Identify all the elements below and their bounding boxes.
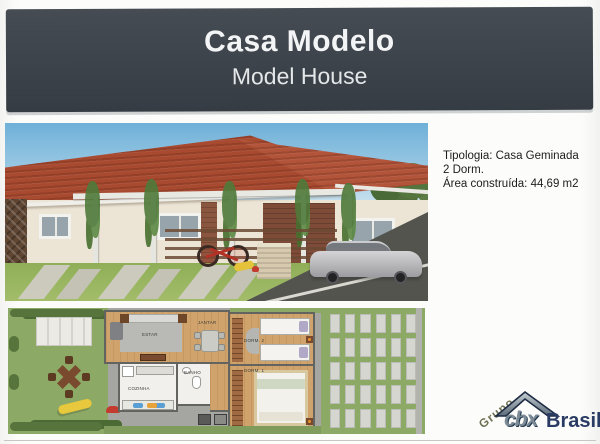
side-garden (8, 308, 108, 434)
car-wheel (326, 271, 339, 284)
garden-chair (65, 356, 73, 364)
paver (360, 385, 370, 404)
title-banner: Casa Modelo Model House (6, 7, 593, 113)
nightstand (306, 418, 313, 425)
company-logo: Grupo cbx Brasil (474, 386, 592, 436)
toy-red (252, 266, 259, 272)
refrigerator (122, 366, 134, 377)
lawn-strip-bottom (104, 426, 321, 434)
dining-chair (218, 344, 225, 351)
paver (345, 362, 355, 381)
paver (330, 409, 340, 428)
wardrobe (232, 370, 243, 426)
paver (376, 338, 386, 357)
backyard (321, 308, 425, 434)
room-bedroom-1: DORM. 1 (228, 364, 315, 430)
paver (360, 338, 370, 357)
house-render-image (5, 123, 428, 301)
backyard-wall (416, 308, 422, 434)
spec-dorms: 2 Dorm. (443, 163, 593, 177)
room-bedroom-2: DORM. 2 (228, 312, 315, 366)
vine-plant (295, 179, 310, 225)
paver (345, 385, 355, 404)
spec-tipologia: Tipologia: Casa Geminada (443, 149, 593, 163)
paver (330, 362, 340, 381)
hedge (10, 422, 102, 431)
paver (330, 338, 340, 357)
room-label-dorm2: DORM. 2 (244, 338, 264, 343)
paver (406, 314, 416, 333)
toy-slide (57, 398, 92, 415)
paver (406, 362, 416, 381)
car-wheel (394, 271, 407, 284)
paver (330, 385, 340, 404)
paver (360, 409, 370, 428)
floor-plan-image: ESTAR JANTAR COZINHA BANHO DORM. 2 (8, 308, 425, 434)
sofa-bench (128, 314, 180, 323)
pergola-gazebo (36, 317, 92, 346)
tv-stand (140, 354, 166, 361)
garden-chair (65, 390, 73, 398)
unit-specs: Tipologia: Casa Geminada 2 Dorm. Área co… (443, 149, 593, 191)
logo-cbx-text: cbx (504, 408, 537, 432)
paver (345, 338, 355, 357)
logo-brasil-text: Brasil (546, 410, 600, 433)
paver (376, 385, 386, 404)
nightstand (306, 336, 313, 343)
picnic-table (52, 360, 86, 394)
paver (345, 314, 355, 333)
bed-pillows (259, 412, 303, 421)
spec-area: Área construída: 44,69 m2 (443, 177, 593, 191)
pillow (299, 347, 308, 358)
paver (376, 362, 386, 381)
scanned-brochure-page: Casa Modelo Model House (0, 0, 600, 444)
single-bed (260, 318, 310, 335)
page-subtitle: Model House (6, 62, 593, 92)
end-table (178, 314, 187, 323)
wardrobe (232, 318, 243, 362)
vine-plant (144, 179, 159, 225)
paver (391, 338, 401, 357)
paver (376, 409, 386, 428)
window-mullion (55, 217, 57, 236)
paver (391, 409, 401, 428)
paver (360, 362, 370, 381)
dining-table (201, 330, 219, 352)
dining-chair (218, 332, 225, 339)
double-bed (254, 370, 308, 426)
paver (360, 314, 370, 333)
room-living-dining: ESTAR JANTAR (104, 310, 230, 364)
hedge (9, 374, 19, 390)
hedge (9, 336, 19, 352)
kitchen-counter (122, 400, 174, 410)
paver (391, 362, 401, 381)
toilet (192, 376, 201, 389)
dining-chair (194, 332, 201, 339)
end-table (120, 314, 129, 323)
room-label-cozinha: COZINHA (128, 386, 150, 391)
vine-plant (85, 181, 100, 227)
hallway (210, 362, 230, 412)
kitchen-counter (136, 366, 174, 375)
vine-plant (222, 181, 237, 227)
bed-blanket (257, 379, 305, 389)
kitchen-sink (133, 403, 143, 408)
paver (406, 409, 416, 428)
dining-chair (194, 344, 201, 351)
scan-artifact-line (4, 440, 596, 441)
window (39, 214, 71, 239)
room-label-estar: ESTAR (142, 332, 158, 337)
parked-car (310, 241, 422, 285)
paver (330, 314, 340, 333)
sofa (110, 322, 123, 340)
vine-plant (341, 183, 356, 229)
utility-box (257, 243, 291, 279)
hedge (10, 309, 104, 317)
room-label-banho: BANHO (184, 370, 201, 375)
garden-chair (82, 373, 90, 381)
room-bathroom: BANHO (176, 362, 212, 406)
room-label-dorm1: DORM. 1 (244, 368, 264, 373)
paver (391, 385, 401, 404)
pillow (299, 321, 308, 332)
paver-grid (330, 314, 416, 428)
paver (391, 314, 401, 333)
paver (376, 314, 386, 333)
paver (406, 385, 416, 404)
garden-chair (48, 373, 56, 381)
room-label-jantar: JANTAR (198, 320, 216, 325)
ac-unit (214, 414, 227, 425)
single-bed (260, 344, 310, 361)
paver (345, 409, 355, 428)
room-kitchen: COZINHA (118, 362, 178, 412)
paver (406, 338, 416, 357)
page-title: Casa Modelo (6, 24, 593, 61)
ac-unit (198, 414, 211, 425)
